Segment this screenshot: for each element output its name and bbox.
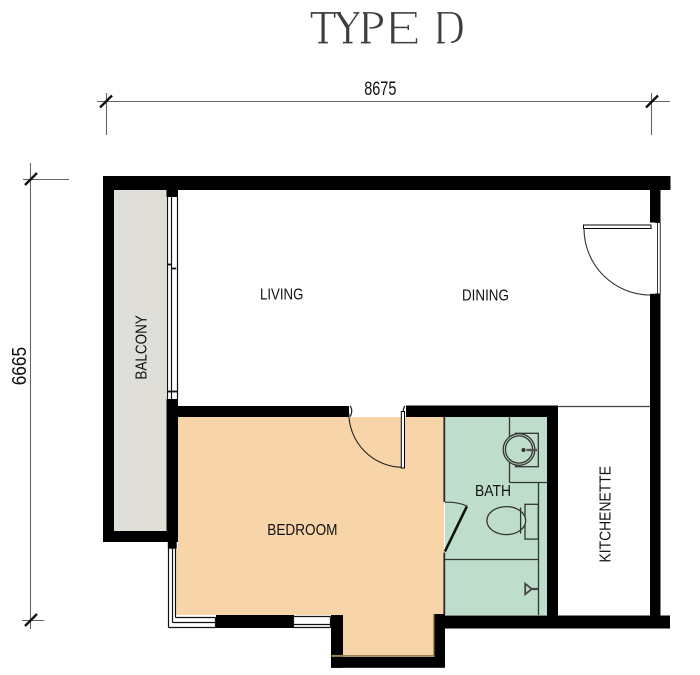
svg-text:6665: 6665 [9,347,31,385]
svg-text:BATH: BATH [475,483,511,500]
svg-text:8675: 8675 [364,78,396,100]
svg-text:DINING: DINING [462,287,509,304]
svg-text:KITCHENETTE: KITCHENETTE [597,466,614,563]
svg-text:LIVING: LIVING [260,287,303,304]
svg-text:BEDROOM: BEDROOM [267,522,337,539]
svg-text:BALCONY: BALCONY [134,315,151,380]
